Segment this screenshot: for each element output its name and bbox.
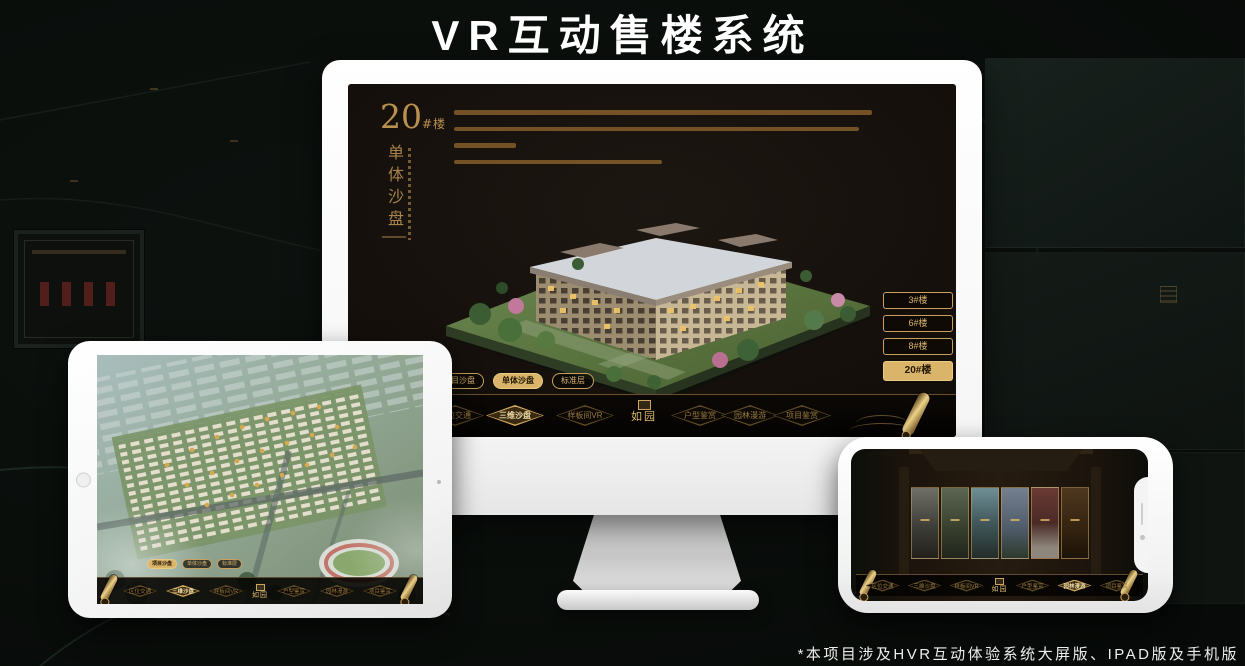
phone-nav-bar: 区位交通 三维沙盘 样板间VR 如园 户型鉴赏 园林漫游 项目鉴赏	[856, 574, 1143, 596]
subtab-single-sandbox[interactable]: 单体沙盘	[493, 373, 543, 389]
subtab-standard-floor[interactable]: 标准层	[552, 373, 594, 389]
brand-logo: 如园	[631, 400, 657, 422]
pavilion-column	[1091, 467, 1101, 577]
plaque-seal-mark	[106, 282, 115, 306]
brand-logo-icon	[995, 578, 1004, 585]
brand-logo-icon	[256, 584, 265, 591]
nav-item-project-gallery[interactable]: 项目鉴赏	[363, 585, 397, 597]
building-number: 20	[380, 97, 422, 136]
speaker-icon	[1141, 503, 1143, 525]
scene-card-entrance[interactable]	[911, 487, 939, 559]
phone-notch	[1134, 477, 1148, 573]
tablet-screen: 项目沙盘 单体沙盘 标准层 区位交通 三维沙盘 样板间VR 如园 户型鉴赏 园林…	[97, 355, 423, 604]
footnote-text: *本项目涉及HVR互动体验系统大屏版、IPAD版及手机版	[798, 643, 1239, 664]
brand-logo: 如园	[992, 578, 1008, 593]
brand-logo: 如园	[252, 584, 268, 599]
scene-card-garden[interactable]	[971, 487, 999, 559]
brand-logo-text: 如园	[252, 592, 268, 599]
pavilion-column	[899, 467, 909, 577]
plaque-seal-mark	[40, 282, 49, 306]
floor-button-8[interactable]: 8#楼	[883, 338, 953, 355]
page-title: VR互动售楼系统	[0, 2, 1245, 63]
text-line	[454, 127, 859, 132]
subtab-project-sandbox[interactable]: 项目沙盘	[147, 559, 177, 569]
background-photo	[985, 58, 1245, 248]
floor-button-20[interactable]: 20#楼	[883, 361, 953, 381]
section-subtitle-decoration	[408, 148, 411, 240]
nav-item-3d-sandbox[interactable]: 三维沙盘	[908, 580, 942, 592]
scroll-ornament	[848, 397, 952, 435]
nav-item-project-gallery[interactable]: 项目鉴赏	[773, 405, 831, 426]
nav-item-garden-tour[interactable]: 园林漫游	[320, 585, 354, 597]
phone-mockup: 区位交通 三维沙盘 样板间VR 如园 户型鉴赏 园林漫游 项目鉴赏	[838, 437, 1173, 613]
background-plaque	[14, 230, 144, 348]
nav-item-3d-sandbox[interactable]: 三维沙盘	[486, 405, 544, 426]
floor-button-group: 3#楼 6#楼 8#楼 20#楼	[883, 292, 953, 381]
camera-icon	[437, 480, 441, 484]
floor-button-6[interactable]: 6#楼	[883, 315, 953, 332]
scene-card-building[interactable]	[1001, 487, 1029, 559]
monitor-stand-base	[557, 590, 759, 610]
nav-item-3d-sandbox[interactable]: 三维沙盘	[166, 585, 200, 597]
floor-button-3[interactable]: 3#楼	[883, 292, 953, 309]
nav-item-model-room-vr[interactable]: 样板间VR	[556, 405, 614, 426]
plaque-seal-mark	[84, 282, 93, 306]
text-line	[454, 143, 516, 148]
nav-item-garden-tour[interactable]: 园林漫游	[721, 405, 779, 426]
building-number-suffix: #楼	[422, 117, 446, 131]
section-title-vertical: 单体沙盘	[382, 144, 406, 238]
nav-item-unit-plans[interactable]: 户型鉴赏	[277, 585, 311, 597]
subtab-single-sandbox[interactable]: 单体沙盘	[182, 559, 212, 569]
nav-item-garden-tour[interactable]: 园林漫游	[1058, 580, 1092, 592]
text-line	[454, 160, 662, 165]
subtab-bar: 项目沙盘 单体沙盘 标准层	[434, 373, 594, 389]
scene-card-shelf[interactable]	[1061, 487, 1089, 559]
scroll-icon	[399, 574, 418, 603]
subtab-standard-floor[interactable]: 标准层	[217, 559, 242, 569]
tablet-nav-bar: 区位交通 三维沙盘 样板间VR 如园 户型鉴赏 园林漫游 项目鉴赏	[97, 577, 423, 604]
stage: VR互动售楼系统 20#楼 单体沙盘	[0, 0, 1245, 666]
plaque-seal-mark	[62, 282, 71, 306]
subtab-bar: 项目沙盘 单体沙盘 标准层	[147, 559, 242, 569]
nav-item-location[interactable]: 区位交通	[866, 580, 900, 592]
nav-item-unit-plans[interactable]: 户型鉴赏	[1016, 580, 1050, 592]
nav-item-model-room-vr[interactable]: 样板间VR	[209, 585, 243, 597]
phone-screen: 区位交通 三维沙盘 样板间VR 如园 户型鉴赏 园林漫游 项目鉴赏	[851, 449, 1148, 601]
text-line	[454, 110, 872, 115]
scene-card-wall[interactable]	[1031, 487, 1059, 559]
building-heading: 20#楼	[380, 100, 446, 133]
plaque-header-line	[32, 250, 126, 254]
nav-item-model-room-vr[interactable]: 样板间VR	[950, 580, 984, 592]
description-paragraph	[454, 110, 884, 176]
nav-item-location[interactable]: 区位交通	[123, 585, 157, 597]
pavilion-roof	[919, 449, 1083, 471]
brand-logo-text: 如园	[992, 586, 1008, 593]
tablet-mockup: 项目沙盘 单体沙盘 标准层 区位交通 三维沙盘 样板间VR 如园 户型鉴赏 园林…	[68, 341, 452, 618]
watermark-logo-icon	[1160, 286, 1177, 303]
camera-icon	[1140, 535, 1145, 540]
monitor-stand-neck	[573, 512, 741, 594]
background-photo	[985, 252, 1245, 450]
scroll-icon	[99, 574, 118, 603]
scroll-icon	[901, 391, 932, 437]
scene-card-lobby[interactable]	[941, 487, 969, 559]
home-button[interactable]	[76, 472, 91, 487]
brand-logo-text: 如园	[631, 411, 657, 422]
brand-logo-icon	[638, 400, 651, 410]
